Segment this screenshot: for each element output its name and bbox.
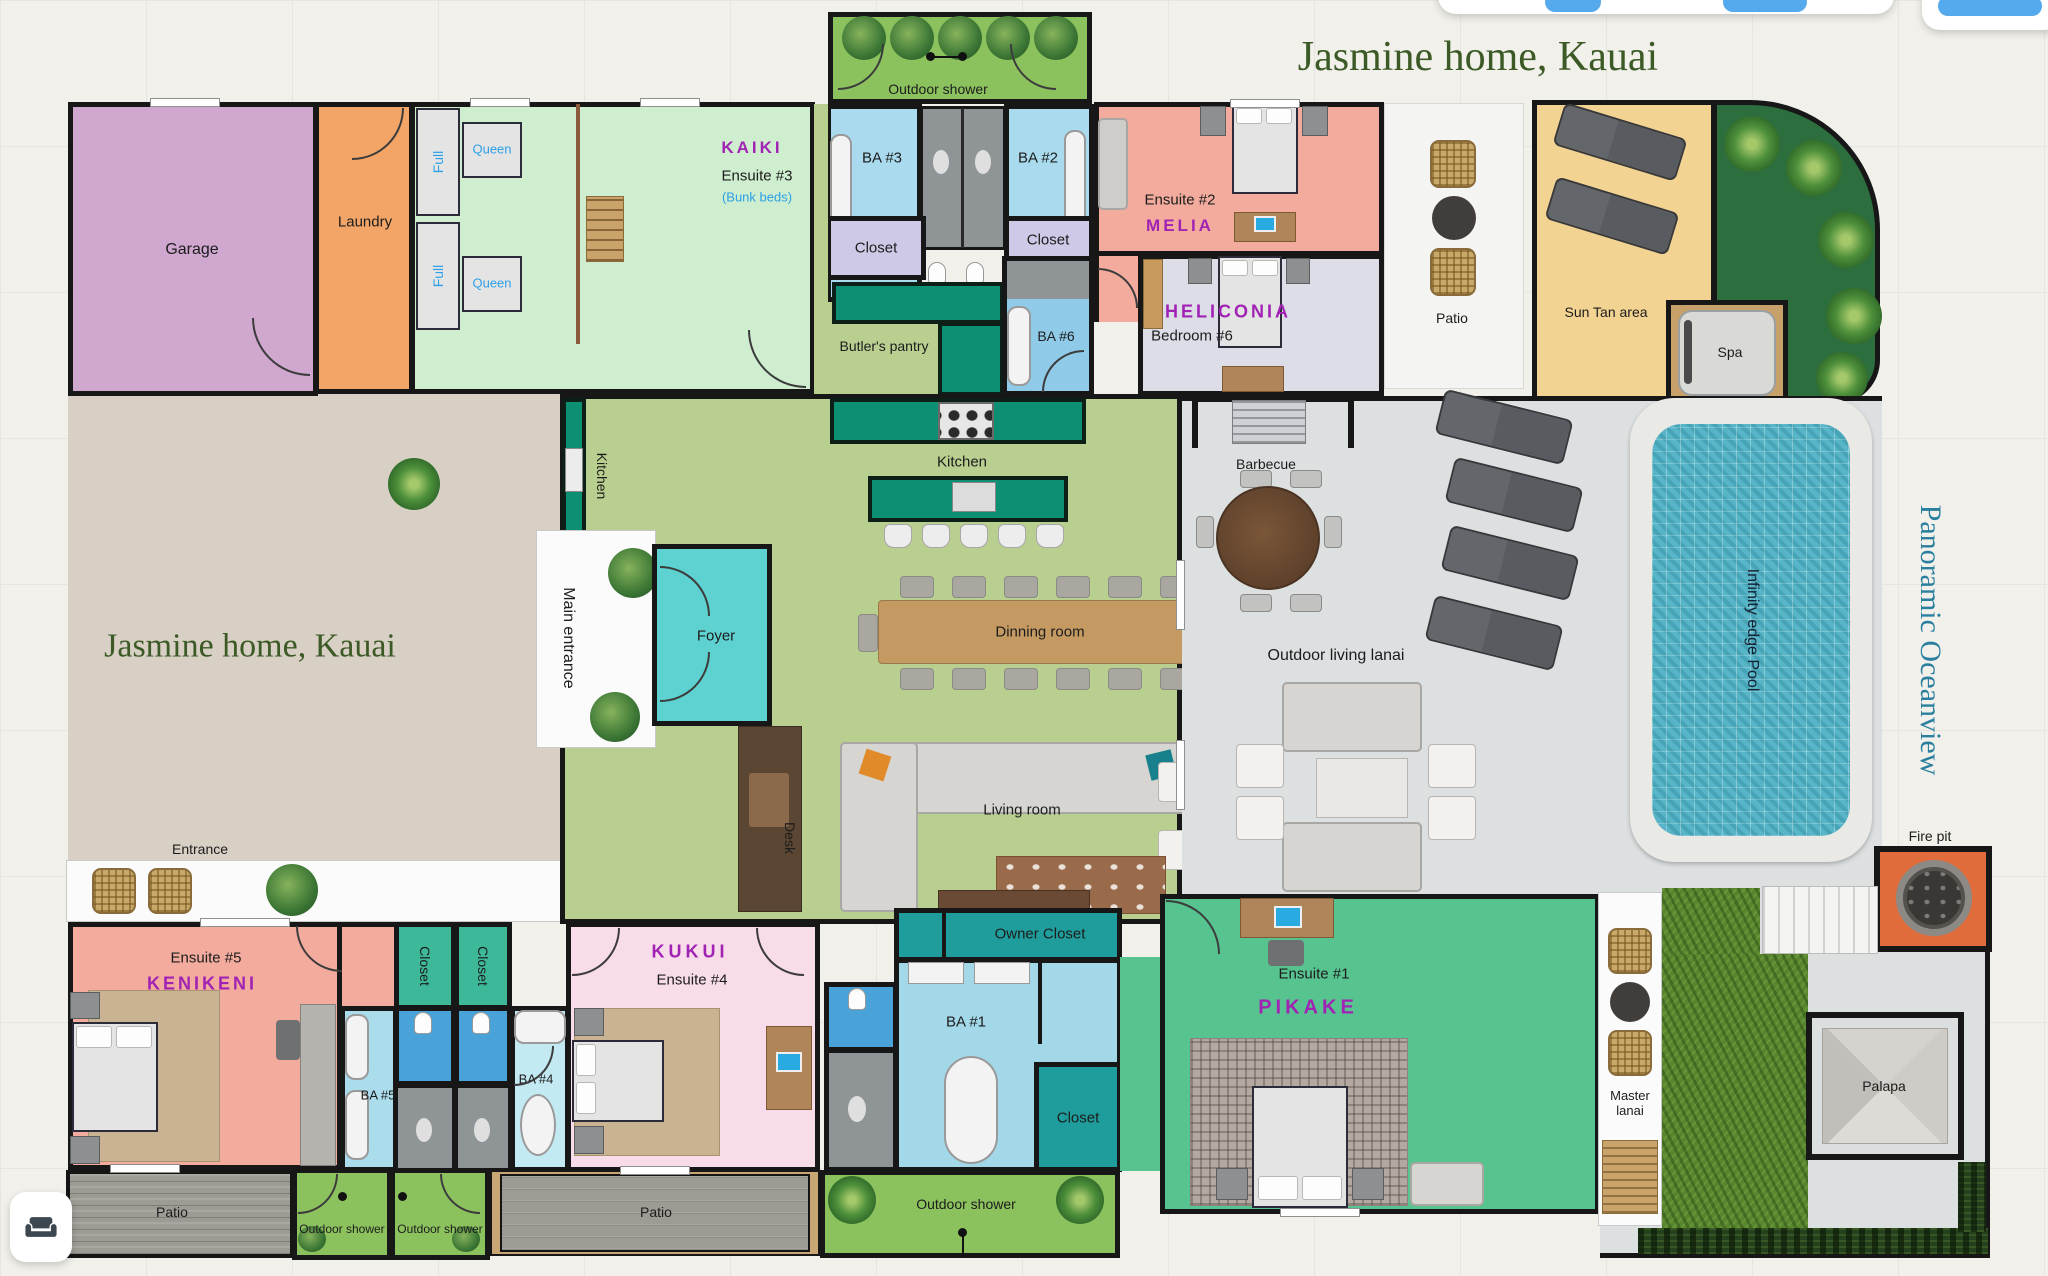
lanai-armchair [1236,744,1284,788]
label-full-1: Full [430,151,446,174]
shower-bar [934,56,960,58]
ba1-divider [1038,958,1042,1044]
wardrobe-bar [938,890,1090,910]
wicker-chair [1430,140,1476,188]
label-entrance: Entrance [172,841,228,857]
nightstand [574,1126,604,1154]
palm-plant [1056,1176,1104,1224]
label-full-2: Full [430,265,446,288]
label-kukui: KUKUI [652,942,729,963]
label-ensuite-5: Ensuite #5 [171,949,242,966]
label-garage: Garage [165,241,218,259]
dining-chair [1004,668,1038,690]
label-desk: Desk [782,822,798,854]
label-queen-2: Queen [472,277,511,292]
palm-plant [1818,212,1874,268]
label-ensuite-4: Ensuite #4 [657,971,728,988]
palm-plant [1826,288,1882,344]
lanai-bench [1602,1140,1658,1214]
shower-stem [962,1236,964,1256]
label-outdoor-shower-b2: Outdoor shower [397,1223,482,1237]
vanity [908,962,964,984]
label-closet-k: Closet [417,946,433,986]
nightstand [1188,258,1212,284]
floorplan-canvas: Jasmine home, Kauai Jasmine home, Kauai … [0,0,2048,1276]
label-closet-c2: Closet [475,946,491,986]
vanity [974,962,1030,984]
sofa [1098,118,1128,210]
nightstand [1302,106,1328,136]
label-ensuite-2: Ensuite #2 [1145,191,1216,208]
window [1176,740,1185,810]
dining-chair [1004,576,1038,598]
dining-chair [952,668,986,690]
hedge [1638,1228,1988,1254]
dining-chair [1056,576,1090,598]
toilet [848,988,866,1010]
room-divider [576,104,580,344]
patio-chair [1290,470,1322,488]
shower-drain [975,150,991,174]
label-closet-ba1: Closet [1057,1109,1100,1126]
dining-chair [900,576,934,598]
patio-chair [1196,516,1214,548]
shower-drain [848,1096,866,1122]
toilet [928,262,946,284]
stool [960,524,988,548]
window [150,98,220,107]
wicker-chair [1608,928,1652,974]
pillow [1258,1176,1298,1200]
label-palapa: Palapa [1862,1078,1906,1094]
nightstand [1352,1168,1384,1200]
dining-chair [1108,576,1142,598]
nightstand [1286,258,1310,284]
dining-chair [952,576,986,598]
watermark-title: Jasmine home, Kauai [104,626,396,665]
label-patio-bm: Patio [640,1204,672,1220]
bathtub [345,1014,369,1080]
wardrobe [1143,259,1163,329]
couch-icon [24,1210,58,1244]
pillow [1222,260,1248,276]
window [470,98,530,107]
label-outdoor-shower-b1: Outdoor shower [299,1223,384,1237]
pantry-counter [832,282,1004,324]
label-ba3: BA #3 [862,149,902,166]
coffee-table [1316,758,1408,818]
stool [1036,524,1064,548]
fire-pit-bowl [1896,860,1972,936]
toilet [472,1012,490,1034]
label-ba2: BA #2 [1018,149,1058,166]
pantry-counter [938,322,1004,396]
pillow [1302,1176,1342,1200]
label-dining: Dinning room [995,623,1084,640]
label-outdoor-shower-top: Outdoor shower [888,81,988,97]
desk-kenikeni [300,1004,336,1166]
pillow [1236,108,1262,124]
label-ba5: BA #5 [361,1089,396,1104]
round-table [1432,196,1476,240]
stall-divider [961,108,964,248]
nightstand [70,992,100,1019]
spa-rail [1684,320,1692,384]
label-ensuite-1: Ensuite #1 [1279,965,1350,982]
patio-chair [1324,516,1342,548]
dining-chair [900,668,934,690]
computer [776,1052,802,1072]
pillow [1252,260,1278,276]
stairs [1762,886,1878,954]
pillow [576,1082,596,1114]
nightstand [1216,1168,1248,1200]
toilet [966,262,984,284]
stool [884,524,912,548]
label-spa: Spa [1718,344,1743,360]
computer [1274,906,1302,928]
shower-drain [474,1118,490,1142]
pillow [116,1026,152,1048]
label-heliconia: HELICONIA [1165,302,1291,323]
sink [952,482,996,512]
window [640,98,700,107]
label-master-lanai: Master lanai [1601,1089,1659,1119]
stove [938,402,994,440]
potted-plant [590,692,640,742]
palm-plant [1786,140,1842,196]
label-butlers-pantry: Butler's pantry [839,338,928,354]
window [1176,560,1185,630]
lanai-armchair [1428,796,1476,840]
label-ensuite-3: Ensuite #3 [722,167,793,184]
oval-tub [520,1094,556,1156]
potted-plant [266,864,318,916]
closet-divider [942,910,946,960]
label-patio-top: Patio [1436,310,1468,326]
dining-chair [1056,668,1090,690]
bathtub [1007,306,1031,386]
round-dining-table [1216,486,1320,590]
label-kitchen-side: Kitchen [594,453,610,500]
label-ba6: BA #6 [1037,328,1074,344]
wicker-chair [148,868,192,914]
label-ba1: BA #1 [946,1013,986,1030]
nightstand [574,1008,604,1036]
wicker-chair [1430,248,1476,296]
round-table [1610,982,1650,1022]
pillow [1266,108,1292,124]
toolbar-card [1438,0,1894,14]
sofa-pikake [1410,1162,1484,1206]
window [1230,99,1300,108]
shower-drain [416,1118,432,1142]
stool [922,524,950,548]
nightstand [1200,106,1226,136]
grass [1662,888,1760,954]
nightstand [70,1136,100,1164]
desk-chair [276,1020,300,1060]
shower-drain [933,150,949,174]
wicker-chair [92,868,136,914]
bathtub [514,1010,566,1044]
shower-head-icon [338,1192,347,1201]
barbecue-grill [1232,400,1306,444]
lanai-armchair [1428,744,1476,788]
pillow [576,1044,596,1076]
desk-heliconia [1222,366,1284,392]
label-sun-tan: Sun Tan area [1564,304,1647,320]
bunk-ladder [586,196,624,262]
label-outdoor-shower-b3: Outdoor shower [916,1196,1016,1212]
label-living: Living room [983,801,1061,818]
lanai-armchair [1236,796,1284,840]
potted-plant [608,548,658,598]
label-bedroom-6: Bedroom #6 [1151,327,1233,344]
toolbar-button-1[interactable] [1545,0,1601,12]
pillow [76,1026,112,1048]
shower-head-icon [398,1192,407,1201]
palm-plant [828,1176,876,1224]
dining-chair [1108,668,1142,690]
stool [998,524,1026,548]
label-patio-bl: Patio [156,1204,188,1220]
palm-plant [1724,116,1780,172]
label-fire-pit: Fire pit [1909,828,1952,844]
furniture-mode-button[interactable] [10,1192,72,1262]
grass [1662,954,1808,1232]
fridge [565,448,583,492]
label-kaiki: KAIKI [721,138,782,158]
label-foyer: Foyer [697,627,735,644]
laptop [1254,216,1276,232]
window [620,1166,690,1175]
desk-chair [748,772,790,828]
pikake-hall [1120,957,1162,1171]
window [200,918,290,927]
freestanding-tub [944,1056,998,1164]
patio-chair [1290,594,1322,612]
label-lanai: Outdoor living lanai [1268,647,1405,665]
label-melia: MELIA [1146,216,1214,236]
label-bunk-beds: (Bunk beds) [722,191,792,206]
label-pikake: PIKAKE [1258,997,1358,1020]
label-laundry: Laundry [338,213,392,230]
toilet [414,1012,432,1034]
patio-chair [1240,594,1272,612]
shower [1007,261,1089,299]
page-title: Jasmine home, Kauai [1298,33,1658,81]
label-oceanview: Panoramic Oceanview [1913,505,1947,776]
hedge [1958,1162,1986,1232]
wicker-chair [1608,1030,1652,1076]
kenikeni-hall [342,922,396,1010]
label-kitchen: Kitchen [937,453,987,470]
lanai-sofa [1282,822,1422,892]
label-closet-ba3: Closet [855,239,898,256]
label-pool: Infinity edge Pool [1743,569,1761,692]
toolbar-button-2[interactable] [1723,0,1807,12]
label-closet-ba2: Closet [1027,231,1070,248]
window [110,1164,180,1173]
window [1280,1208,1360,1217]
dining-chair [858,614,878,652]
label-queen-1: Queen [472,143,511,158]
lanai-sofa [1282,682,1422,752]
palm-plant [388,458,440,510]
label-owner-closet: Owner Closet [995,925,1086,942]
label-main-entrance: Main entrance [559,587,577,688]
toolbar-button-3[interactable] [1938,0,2042,16]
desk-chair [1268,940,1304,966]
